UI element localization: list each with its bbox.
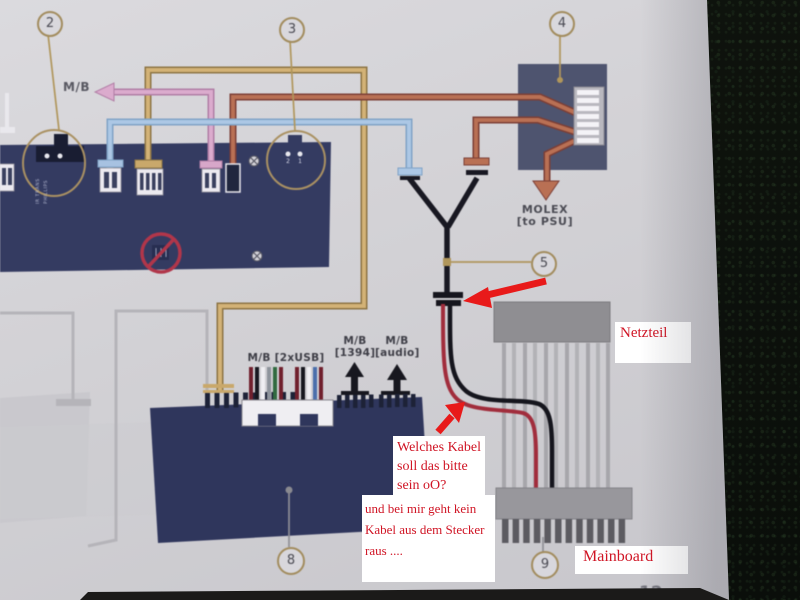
red-arrow-upper xyxy=(463,281,546,308)
question-note-1: Welches Kabel soll das bitte sein oO? xyxy=(393,436,485,496)
paper-edge-shadow xyxy=(640,0,730,600)
question-note-2: und bei mir geht kein Kabel aus dem Stec… xyxy=(362,495,495,582)
diagram-paper: M/B MOLEX [to PSU] M/B [2xUSB] M/B [1394… xyxy=(0,0,800,600)
red-arrow-lower xyxy=(438,402,465,432)
photo-scene: M/B MOLEX [to PSU] M/B [2xUSB] M/B [1394… xyxy=(0,0,800,600)
